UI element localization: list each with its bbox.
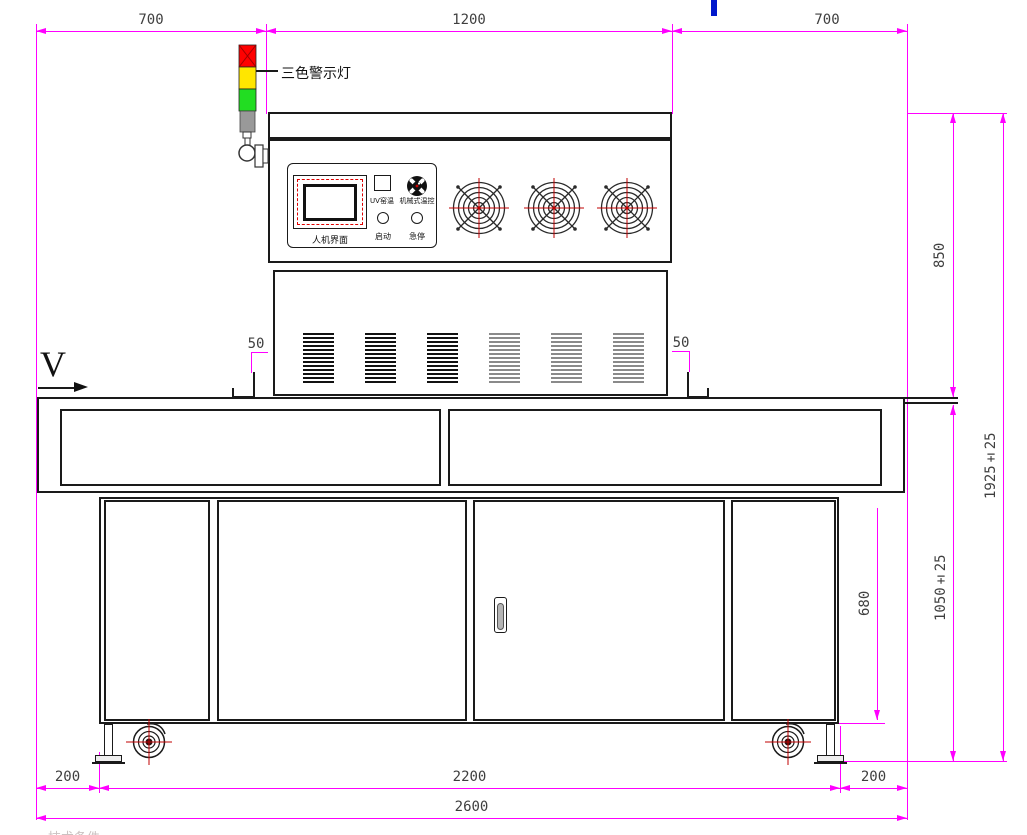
dim-line-top-right — [672, 31, 907, 32]
dim-label-height-head: 850 — [933, 213, 947, 297]
door-handle-grip — [497, 603, 504, 630]
caster-wheel-icon — [121, 714, 177, 770]
vent-louver — [427, 333, 458, 383]
temperature-knob-label: 机械式温控 — [393, 196, 441, 206]
vent-louver — [551, 333, 582, 383]
conveyor-panel-right — [448, 409, 882, 486]
dim-line-height-cabinet — [877, 508, 878, 720]
dim-line-bottom-total — [36, 818, 907, 819]
extension-line-right — [907, 24, 908, 820]
dim-line-offset-left — [251, 352, 268, 353]
table-edge-extension-bottom — [905, 402, 958, 404]
cabinet-panel-2 — [217, 500, 467, 721]
dim-line-bottom-left — [36, 788, 99, 789]
fan-grille-icon — [596, 177, 658, 239]
dim-label-top-left: 700 — [36, 13, 266, 27]
table-edge-extension-top — [905, 397, 958, 399]
dim-label-bottom-right: 200 — [840, 770, 907, 784]
direction-arrow-head — [74, 382, 88, 392]
vent-louver — [303, 333, 334, 383]
dim-label-bottom-left: 200 — [36, 770, 99, 784]
fan-grille-icon — [448, 177, 510, 239]
machine-top-strip — [268, 112, 672, 139]
start-button-label: 启动 — [371, 231, 395, 242]
estop-button-label: 急停 — [405, 231, 429, 242]
cabinet-panel-4 — [731, 500, 836, 721]
dim-line-height-table — [953, 405, 954, 761]
dim-line-height-total — [1003, 113, 1004, 761]
leveling-foot-right-base — [817, 755, 844, 762]
dim-line-height-head — [953, 113, 954, 397]
direction-label: V — [40, 346, 66, 382]
floor-reference-line — [842, 761, 1007, 762]
dim-label-offset-left: 50 — [243, 337, 269, 351]
base-cabinet — [99, 497, 839, 724]
leveling-foot-right-base — [814, 762, 847, 764]
caster-wheel-icon — [760, 714, 816, 770]
hmi-screen-label: 人机界面 — [293, 233, 367, 246]
dim-line-bottom-right — [840, 788, 907, 789]
dim-ext-offset-right — [689, 351, 690, 372]
dim-label-top-right: 700 — [772, 13, 882, 27]
tower-light-leader-line — [256, 70, 278, 72]
extension-line-top-right — [907, 113, 1007, 114]
extension-line-cabinet-bottom — [839, 723, 885, 724]
dim-label-top-center: 1200 — [266, 13, 672, 27]
dim-label-bottom-total: 2600 — [36, 800, 907, 814]
engineering-drawing-canvas: 700 1200 700 850 1925±25 1050±25 680 200… — [0, 0, 1027, 835]
dim-line-offset-right — [672, 351, 690, 352]
dim-line-top-left — [36, 31, 266, 32]
dim-label-height-cabinet: 680 — [858, 558, 872, 648]
leveling-foot-right — [826, 724, 835, 757]
leveling-foot-left-base — [95, 755, 122, 762]
conveyor-panel-left — [60, 409, 441, 486]
direction-arrow — [38, 387, 76, 389]
hmi-screen[interactable] — [303, 184, 357, 221]
dim-line-bottom-center — [99, 788, 840, 789]
vent-louver — [489, 333, 520, 383]
tower-light-label: 三色警示灯 — [281, 63, 351, 83]
dim-label-bottom-center: 2200 — [99, 770, 840, 784]
leveling-foot-left — [104, 724, 113, 757]
start-button[interactable] — [377, 212, 389, 224]
cabinet-panel-1 — [104, 500, 210, 721]
left-bracket — [253, 372, 255, 398]
estop-button[interactable] — [411, 212, 423, 224]
temperature-knob-icon[interactable] — [405, 174, 429, 198]
cabinet-door[interactable] — [473, 500, 725, 721]
tower-warning-light-icon — [230, 40, 275, 180]
fan-grille-icon — [523, 177, 585, 239]
extension-line-head-right — [672, 24, 673, 114]
dim-label-offset-right: 50 — [668, 336, 694, 350]
right-bracket — [687, 372, 689, 398]
dim-line-top-center — [266, 31, 672, 32]
vent-louver — [365, 333, 396, 383]
uv-temp-button[interactable] — [374, 175, 391, 191]
blue-mark — [711, 0, 717, 16]
dim-label-height-total: 1925±25 — [984, 420, 998, 512]
dim-label-height-table: 1050±25 — [934, 540, 948, 635]
vent-louver — [613, 333, 644, 383]
footer-note-partial: 技术条件 — [48, 827, 100, 835]
dim-ext-offset-left — [251, 352, 252, 373]
